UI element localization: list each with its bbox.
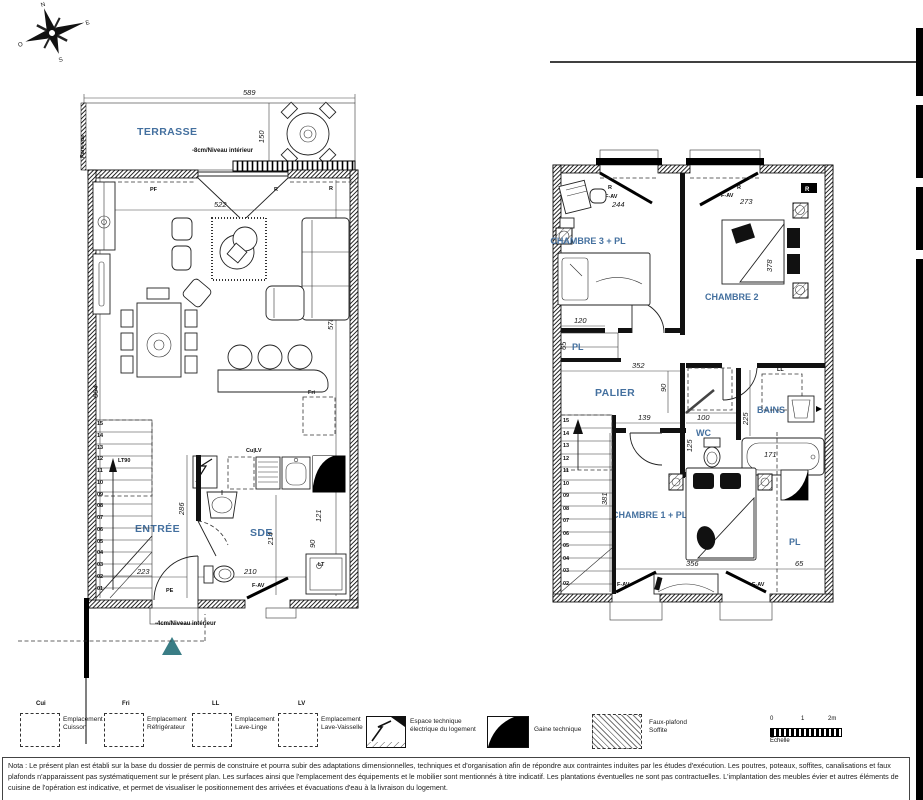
room-palier: PALIER	[595, 387, 635, 399]
single-bed-chambre3	[558, 253, 650, 305]
stair-step-number: 10	[563, 482, 575, 488]
stair-step-number: 07	[563, 519, 575, 525]
double-bed-chambre1	[686, 468, 756, 560]
gaine-technique-symbol	[313, 456, 345, 492]
wall-ch2-bottom-2	[757, 363, 825, 368]
stair-step-number: 08	[97, 504, 109, 510]
stair-step-number: 11	[563, 469, 575, 475]
scale-tick-2m: 2m	[828, 716, 836, 722]
room-pl-top: PL	[572, 342, 584, 352]
sde-door-swing	[198, 521, 228, 545]
dim-sde-width: 210	[243, 567, 257, 576]
adjacent-wall-bar	[916, 28, 923, 800]
terrace-table-set	[281, 102, 336, 165]
dim-pl-65: 65	[559, 341, 568, 350]
room-entree: ENTRÉE	[135, 522, 180, 535]
stair-step-number: 13	[97, 446, 109, 452]
stair-step-number: 10	[97, 481, 109, 487]
stair-step-number: 02	[563, 582, 575, 588]
pl-closet-top	[561, 333, 621, 362]
kitchen-sink	[282, 457, 310, 489]
wall-palier-ch1-b	[660, 428, 686, 433]
legend-code-refrigerateur: Fri	[122, 701, 130, 707]
washbasin	[207, 490, 237, 518]
stool-2	[258, 345, 282, 369]
compass-e: E	[85, 20, 91, 27]
wall-cabinets	[93, 182, 115, 314]
room-wc: WC	[696, 428, 711, 438]
stair-step-number: 15	[563, 419, 575, 425]
legend-box-refrigerateur	[104, 713, 144, 747]
desk-chambre3	[559, 180, 606, 228]
boundary-dashed-line	[18, 614, 205, 641]
entrance-triangle-marker	[162, 637, 182, 655]
legend-label-espace-technique: Espace technique électrique du logement	[410, 718, 476, 734]
dim-left-height: 664	[91, 385, 100, 398]
terrace-level-note: -8cm/Niveau intérieur	[192, 148, 254, 154]
fridge-label: Fri	[308, 390, 316, 396]
dim-fav-273: 273	[739, 197, 753, 206]
stair-step-number: 03	[563, 569, 575, 575]
floorplan-page: N E S O 589 Pare-vue 150 TERRASSE -8cm/N…	[0, 0, 923, 800]
dim-shower-1: 121	[314, 509, 323, 522]
room-pl-right: PL	[789, 537, 801, 547]
wall-wc-left	[680, 363, 685, 478]
window-tab-bottom-2	[720, 602, 772, 620]
shower-tray	[306, 554, 346, 594]
floorplan-drawing: N E S O 589 Pare-vue 150 TERRASSE -8cm/N…	[0, 0, 923, 800]
fav-label-left-plan: F-AV	[252, 583, 265, 589]
legend-label-cuisson: Emplacement Cuisson	[63, 716, 103, 732]
dim-pl-120: 120	[574, 316, 587, 325]
dim-palier-352: 352	[632, 361, 645, 370]
stair-step-number: 05	[97, 540, 109, 546]
stair-step-number: 14	[563, 432, 575, 438]
dining-table	[121, 288, 197, 377]
terrace-step	[233, 161, 355, 171]
toilet	[204, 566, 234, 583]
wall-wc-bains	[736, 368, 741, 440]
legend-icon-espace-technique	[366, 716, 406, 748]
double-bed-chambre2	[722, 220, 800, 284]
radiator-r1: R	[608, 185, 612, 191]
wc-toilet	[704, 438, 720, 467]
stair-step-number: 07	[97, 516, 109, 522]
dresser	[654, 574, 718, 594]
plan-right: F-AV 244 F-AV 273 R R R	[550, 150, 833, 620]
stair-step-number: 03	[97, 563, 109, 569]
radiator-label-2: R	[329, 186, 333, 192]
sofa	[266, 218, 349, 320]
legend-label-lave-vaisselle: Emplacement Lave-Vaisselle	[321, 716, 363, 732]
stair-step-number: 06	[97, 528, 109, 534]
sde-door-leaf	[198, 521, 216, 556]
pe-label: PE	[166, 588, 174, 594]
radiator-label-1: R	[274, 187, 278, 193]
legend-box-cuisson	[20, 713, 60, 747]
dim-ch1-356: 356	[686, 559, 699, 568]
radiator-r2: R	[737, 185, 741, 191]
stair-step-number: 15	[97, 422, 109, 428]
dim-palier-139: 139	[638, 413, 651, 422]
pf-label: PF	[150, 187, 158, 193]
fav-bottom-1: F-AV	[617, 582, 630, 588]
legend-label-faux-plafond: Faux-plafond Soffite	[649, 719, 687, 735]
legend-code-lave-linge: LL	[212, 701, 219, 707]
bay-door-leaf-left	[198, 178, 240, 218]
legend-code-cuisson: Cui	[36, 701, 46, 707]
soffite-dashed-area	[688, 368, 732, 410]
wall-ch3-ch2	[680, 173, 685, 335]
nightstand-1	[669, 474, 683, 490]
room-chambre1: CHAMBRE 1 + PL	[612, 510, 688, 520]
legend-label-gaine-technique: Gaine technique	[534, 726, 581, 734]
dim-shower-2: 90	[308, 539, 317, 548]
pouf-1	[172, 218, 192, 240]
legend-label-refrigerateur: Emplacement Réfrigérateur	[147, 716, 187, 732]
dim-ch1-65: 65	[795, 559, 804, 568]
lintel-1	[596, 158, 662, 165]
stair-step-number: 11	[97, 469, 109, 475]
stair-step-numbers-left: 151413121110090807060504030201	[97, 422, 109, 592]
scale-tick-0: 0	[770, 716, 773, 722]
dim-stair-381: 381	[600, 492, 609, 505]
stair-step-number: 09	[563, 494, 575, 500]
stair-step-number: 12	[97, 457, 109, 463]
legend-box-lave-linge	[192, 713, 232, 747]
legend-label-lave-linge: Emplacement Lave-Linge	[235, 716, 275, 732]
stair-step-number: 04	[97, 551, 109, 557]
ll-label: LL	[777, 367, 784, 373]
dim-wc-100: 100	[697, 413, 710, 422]
compass-s: S	[58, 57, 64, 64]
radiator-r3: R	[805, 187, 810, 193]
nota-text-box: Nota : Le présent plan est établi sur la…	[2, 757, 910, 800]
lintel-2	[686, 158, 764, 165]
left-edge-wall	[84, 598, 89, 678]
legend-box-lave-vaisselle	[278, 713, 318, 747]
compass-rose: N E S O	[8, 0, 99, 75]
bay-door-leaf-right	[246, 178, 288, 218]
room-chambre2: CHAMBRE 2	[705, 292, 759, 302]
room-chambre3: CHAMBRE 3 + PL	[550, 236, 626, 246]
dim-sejour-width: 522	[214, 200, 227, 209]
room-sde: SDE	[250, 527, 273, 539]
entrance-level-note: -4cm/Niveau intérieur	[155, 621, 217, 627]
legend-icon-faux-plafond	[592, 714, 642, 749]
legend-code-lave-vaisselle: LV	[298, 701, 305, 707]
stool-1	[228, 345, 252, 369]
scale-bar	[770, 728, 842, 737]
compass-o: O	[17, 42, 24, 49]
pouf-3	[182, 278, 213, 309]
wall-ch2-bottom-1	[686, 363, 722, 368]
pare-vue-label: Pare-vue	[80, 135, 86, 158]
scale-tick-1: 1	[801, 716, 804, 722]
window-sill-tab	[266, 608, 296, 618]
legend-icon-gaine-technique	[487, 716, 529, 748]
cu-lv-label: Cu|LV	[246, 448, 262, 454]
dim-bains-225: 225	[741, 412, 750, 426]
stair-step-number: 13	[563, 444, 575, 450]
rug-and-armchair	[212, 218, 266, 280]
gaine-wedge-ch1	[781, 470, 808, 500]
cooker-emplacement	[228, 457, 254, 489]
pe-door-swing	[154, 556, 198, 600]
lt-label: LT	[318, 562, 325, 568]
dim-palier-90: 90	[659, 383, 668, 392]
lt90-label: LT90	[118, 458, 130, 464]
stool-3	[288, 345, 312, 369]
scale-label: Echelle	[770, 738, 790, 744]
wall-pl-top	[561, 328, 605, 333]
kitchen-island	[218, 370, 328, 392]
stair-step-number: 02	[97, 575, 109, 581]
fav-bottom-2: F-AV	[752, 582, 765, 588]
plan-left: 589 Pare-vue 150 TERRASSE -8cm/Niveau in…	[18, 88, 358, 744]
dim-bath-171: 171	[764, 450, 777, 459]
stair-step-numbers-right: 1514131211100908070605040302	[563, 419, 575, 587]
window-tab-bottom-1	[610, 602, 662, 620]
dim-terrace-width: 589	[243, 88, 256, 97]
dim-terrace-depth: 150	[257, 130, 266, 143]
stair-step-number: 09	[97, 493, 109, 499]
fav-top-2: F-AV	[721, 193, 734, 199]
pouf-2	[172, 246, 191, 270]
stair-step-number: 12	[563, 457, 575, 463]
bains-washbasin	[788, 396, 822, 422]
dim-ch2-378: 378	[765, 259, 774, 272]
compass-n: N	[40, 2, 46, 9]
dim-wc-125: 125	[685, 439, 694, 452]
stair-step-number: 01	[97, 587, 109, 593]
dim-fav-244: 244	[611, 200, 625, 209]
ch3-door-swing	[632, 301, 664, 333]
wc-door-leaf	[686, 390, 714, 413]
stair-step-number: 05	[563, 544, 575, 550]
dim-entree-height: 286	[177, 502, 186, 516]
stair-step-number: 08	[563, 507, 575, 513]
stair-step-number: 06	[563, 532, 575, 538]
sde-wall	[196, 455, 201, 521]
room-terrasse: TERRASSE	[137, 126, 197, 138]
stair-step-number: 04	[563, 557, 575, 563]
dishrack	[256, 457, 280, 489]
dim-entree-width: 223	[136, 567, 150, 576]
ch1-door-swing	[630, 433, 662, 465]
fridge-emplacement	[303, 397, 335, 435]
stair-step-number: 14	[97, 434, 109, 440]
nightstand-2	[758, 474, 772, 490]
